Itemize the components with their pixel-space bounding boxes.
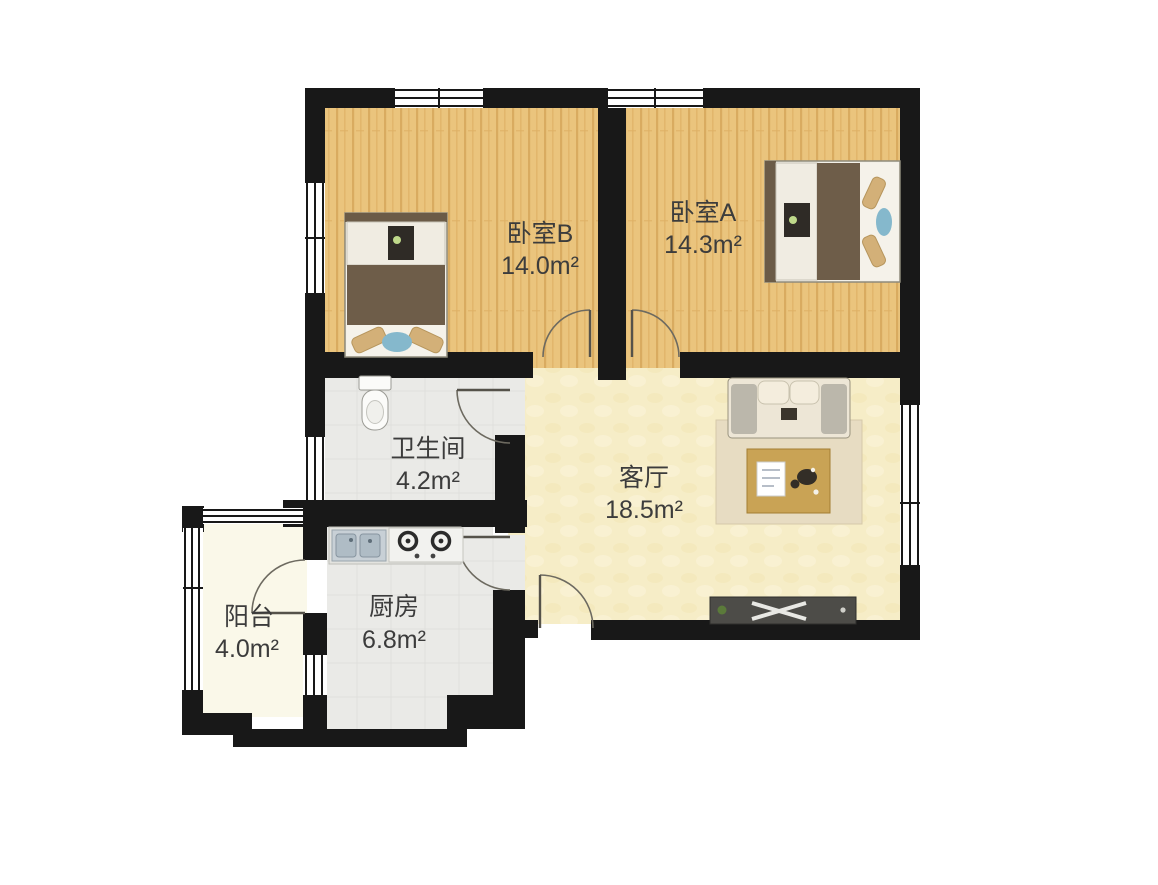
window-living-right	[900, 405, 920, 565]
stove-knob-right	[431, 554, 436, 559]
tv-stand-plant	[718, 606, 727, 615]
wall-kitchen-bottom	[233, 729, 467, 747]
sofa-arm-left	[731, 384, 757, 434]
sink-faucet	[349, 538, 353, 542]
sofa-arm-right	[821, 384, 847, 434]
sofa-cushion-right	[790, 381, 819, 404]
wall-below-bedroom-a	[680, 352, 920, 378]
balcony-area: 4.0m²	[215, 635, 279, 663]
window-balcony-top	[203, 508, 303, 524]
window-bedroom-a-top	[608, 88, 703, 108]
sink-basin-left	[336, 534, 356, 557]
bedroom-a-label: 卧室A	[670, 199, 737, 227]
wall-balcony-divider-top	[303, 506, 327, 560]
stove-burner-right-center	[439, 539, 444, 544]
bed-b-tv	[388, 226, 414, 260]
wall-kitchen-step	[447, 695, 525, 729]
bathroom-doorway-floor	[495, 378, 525, 440]
window-balcony-divider	[303, 655, 327, 695]
window-balcony-left	[183, 528, 203, 690]
sink-basin-right	[360, 534, 380, 557]
toilet-seat	[367, 401, 384, 424]
wall-balcony-divider-bottom	[303, 695, 327, 729]
table-dot-2	[811, 468, 815, 472]
bed-a-headrail	[765, 161, 776, 282]
bed-b-tv-light	[393, 236, 401, 244]
kitchen-label: 厨房	[369, 593, 419, 621]
table-dot-1	[813, 489, 818, 494]
wall-bedroom-divider	[598, 108, 626, 380]
sink-drain	[368, 539, 372, 543]
kitchen-fixtures	[329, 527, 463, 564]
stove-knob-left	[415, 554, 420, 559]
bathroom-label: 卫生间	[390, 435, 465, 463]
bed-b-rug	[382, 332, 412, 352]
bed-b-headrail	[345, 213, 447, 222]
window-bedroom-b-left	[305, 183, 325, 293]
bedroom-a-area: 14.3m²	[664, 231, 742, 259]
bathroom-area: 4.2m²	[396, 467, 460, 495]
bedroom-b-furniture	[345, 213, 447, 357]
floor-plan-canvas: 卧室B 14.0m² 卧室A 14.3m² 卫生间 4.2m² 客厅 18.5m…	[0, 0, 1158, 885]
bedroom-b-label: 卧室B	[507, 220, 574, 248]
living-room-label: 客厅	[619, 464, 669, 492]
kitchen-area: 6.8m²	[362, 626, 426, 654]
wall-balcony-divider-mid	[303, 613, 327, 655]
sofa-tray	[781, 408, 797, 420]
window-bathroom-left	[305, 437, 325, 500]
tv-stand-item	[840, 607, 845, 612]
bed-a-tv-light	[789, 216, 797, 224]
bed-a-duvet	[817, 163, 860, 280]
window-bedroom-b-top	[395, 88, 483, 108]
wall-balcony-corner	[182, 713, 252, 735]
bed-b-duvet	[347, 265, 445, 325]
wall-kitchen-right	[493, 590, 525, 700]
bedroom-a-furniture	[765, 161, 900, 282]
table-paper	[757, 462, 785, 496]
bed-a-rug	[876, 208, 892, 236]
floor-plan: 卧室B 14.0m² 卧室A 14.3m² 卫生间 4.2m² 客厅 18.5m…	[0, 0, 1158, 885]
bedroom-b-area: 14.0m²	[501, 252, 579, 280]
toilet-tank	[359, 376, 391, 390]
bathroom-fixtures	[359, 376, 391, 430]
stove-burner-left-center	[406, 539, 411, 544]
living-room-area: 18.5m²	[605, 496, 683, 524]
balcony-label: 阳台	[224, 603, 274, 631]
sofa-cushion-left	[758, 381, 789, 404]
table-cup	[791, 480, 800, 489]
kitchen-doorway-floor	[493, 535, 525, 592]
